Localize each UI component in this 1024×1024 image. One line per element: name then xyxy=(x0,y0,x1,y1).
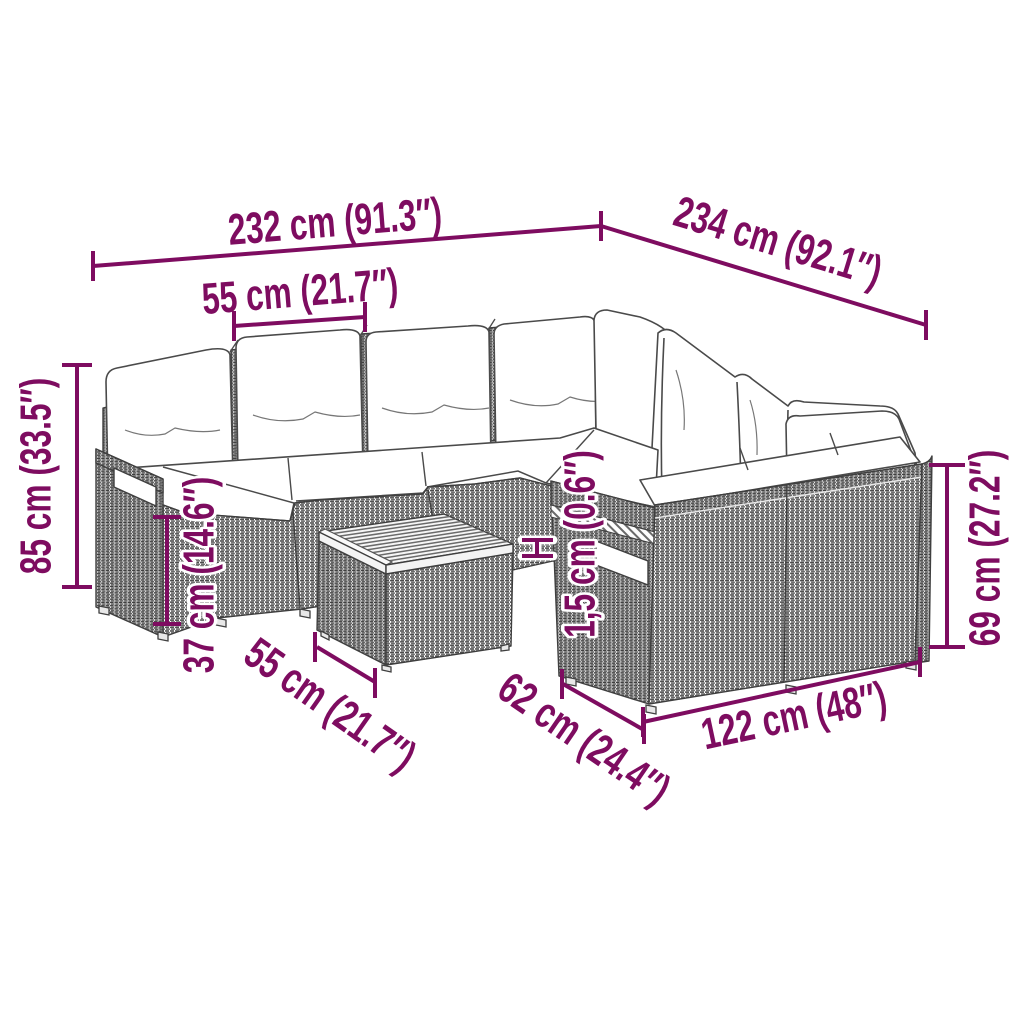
svg-text:37 cm (14.6″): 37 cm (14.6″) xyxy=(174,477,223,674)
svg-text:1,5 cm (0.6″): 1,5 cm (0.6″) xyxy=(555,450,604,638)
svg-text:69 cm (27.2″): 69 cm (27.2″) xyxy=(960,450,1009,647)
svg-text:85 cm (33.5″): 85 cm (33.5″) xyxy=(11,378,60,575)
